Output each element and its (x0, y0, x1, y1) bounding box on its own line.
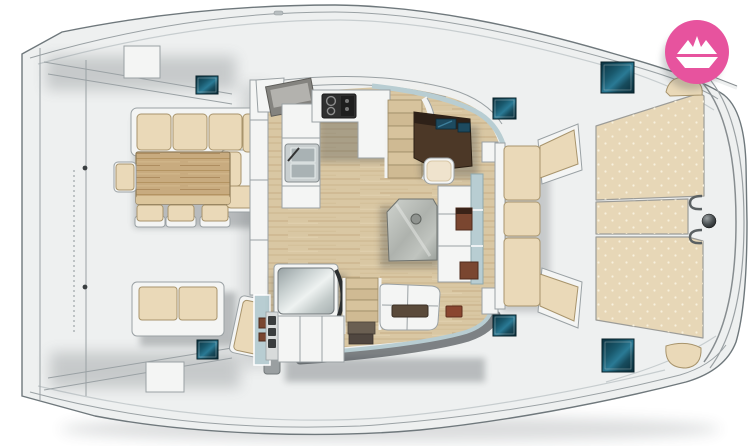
dining-table (136, 152, 230, 204)
berth-mattress (278, 268, 334, 314)
nav-screen-2 (458, 123, 470, 132)
stairs-tread (346, 311, 378, 322)
salon-forward-wall (438, 174, 483, 284)
lower-cabinet-band (278, 316, 344, 362)
side-seat-cushion (116, 164, 134, 190)
deck-hatch (601, 62, 634, 93)
floor-red-box (446, 306, 462, 317)
burner-4 (345, 107, 349, 111)
cabinet-knob-3 (268, 339, 276, 348)
dining-table-edge (136, 196, 230, 204)
stool-2 (166, 205, 196, 227)
sofa-cushion-1 (137, 114, 171, 150)
transom-step-top (124, 46, 160, 78)
lower-cabinet (266, 312, 344, 362)
bench-cushion-spine-3 (504, 238, 540, 306)
stairs-tread (346, 278, 378, 289)
cabinet-knob-2 (268, 328, 276, 336)
stool-cushion (137, 205, 163, 221)
boat-floorplan-svg (0, 0, 750, 446)
platform-fitting-1 (83, 166, 88, 171)
deck-hatch (493, 98, 516, 119)
deck-hatch (602, 339, 634, 372)
deck-hatch (493, 315, 516, 336)
dining-stools (135, 205, 230, 227)
bench-cushion-spine-2 (504, 202, 540, 236)
port-stairs (344, 278, 380, 344)
sofa-cushion-3 (209, 114, 242, 150)
salon (250, 77, 506, 382)
salon-table-knob (411, 214, 421, 224)
galley-sink (285, 144, 319, 182)
burner-3 (345, 99, 349, 103)
dining-side-seat (114, 162, 136, 192)
transom-step-bottom (146, 362, 184, 392)
stairs-tread (388, 165, 422, 178)
aft-bench-cushion-1 (139, 287, 177, 320)
stool-3 (200, 205, 230, 227)
stairs-tread (346, 300, 378, 311)
aft-bench-cushion-2 (179, 287, 217, 320)
deck-cleat (274, 11, 283, 15)
stairs-lower-tread (348, 322, 375, 334)
stairs-tread (346, 289, 378, 300)
boat-floorplan-image (0, 0, 750, 446)
cooktop-panel (341, 96, 354, 116)
nav-seat-cushion (427, 161, 451, 181)
aft-bench (132, 282, 224, 336)
salon-table (380, 199, 440, 268)
cooktop (322, 94, 356, 118)
platform-fitting-2 (83, 285, 88, 290)
sink-basin-1 (291, 148, 315, 162)
sofa-tray (392, 305, 428, 317)
cabinet-knob-1 (268, 316, 276, 325)
sink-basin-2 (291, 164, 315, 178)
stairs-lower-tread2 (349, 334, 373, 344)
sunpad-middle-tufting (596, 199, 688, 234)
bench-cushion-spine-1 (504, 146, 540, 200)
navigation-station (414, 112, 478, 184)
stairs-tread (388, 100, 422, 113)
stool-cushion (168, 205, 194, 221)
sofa-cushion-2 (173, 114, 207, 150)
wall-cabinet-box-1-top (456, 208, 472, 214)
deck-hatch (197, 340, 218, 359)
deck-hatch (196, 76, 218, 94)
wall-cabinet-box-2 (460, 262, 478, 279)
stool-cushion (202, 205, 228, 221)
stool-1 (135, 205, 165, 227)
anchor-ball-fitting (702, 214, 716, 228)
